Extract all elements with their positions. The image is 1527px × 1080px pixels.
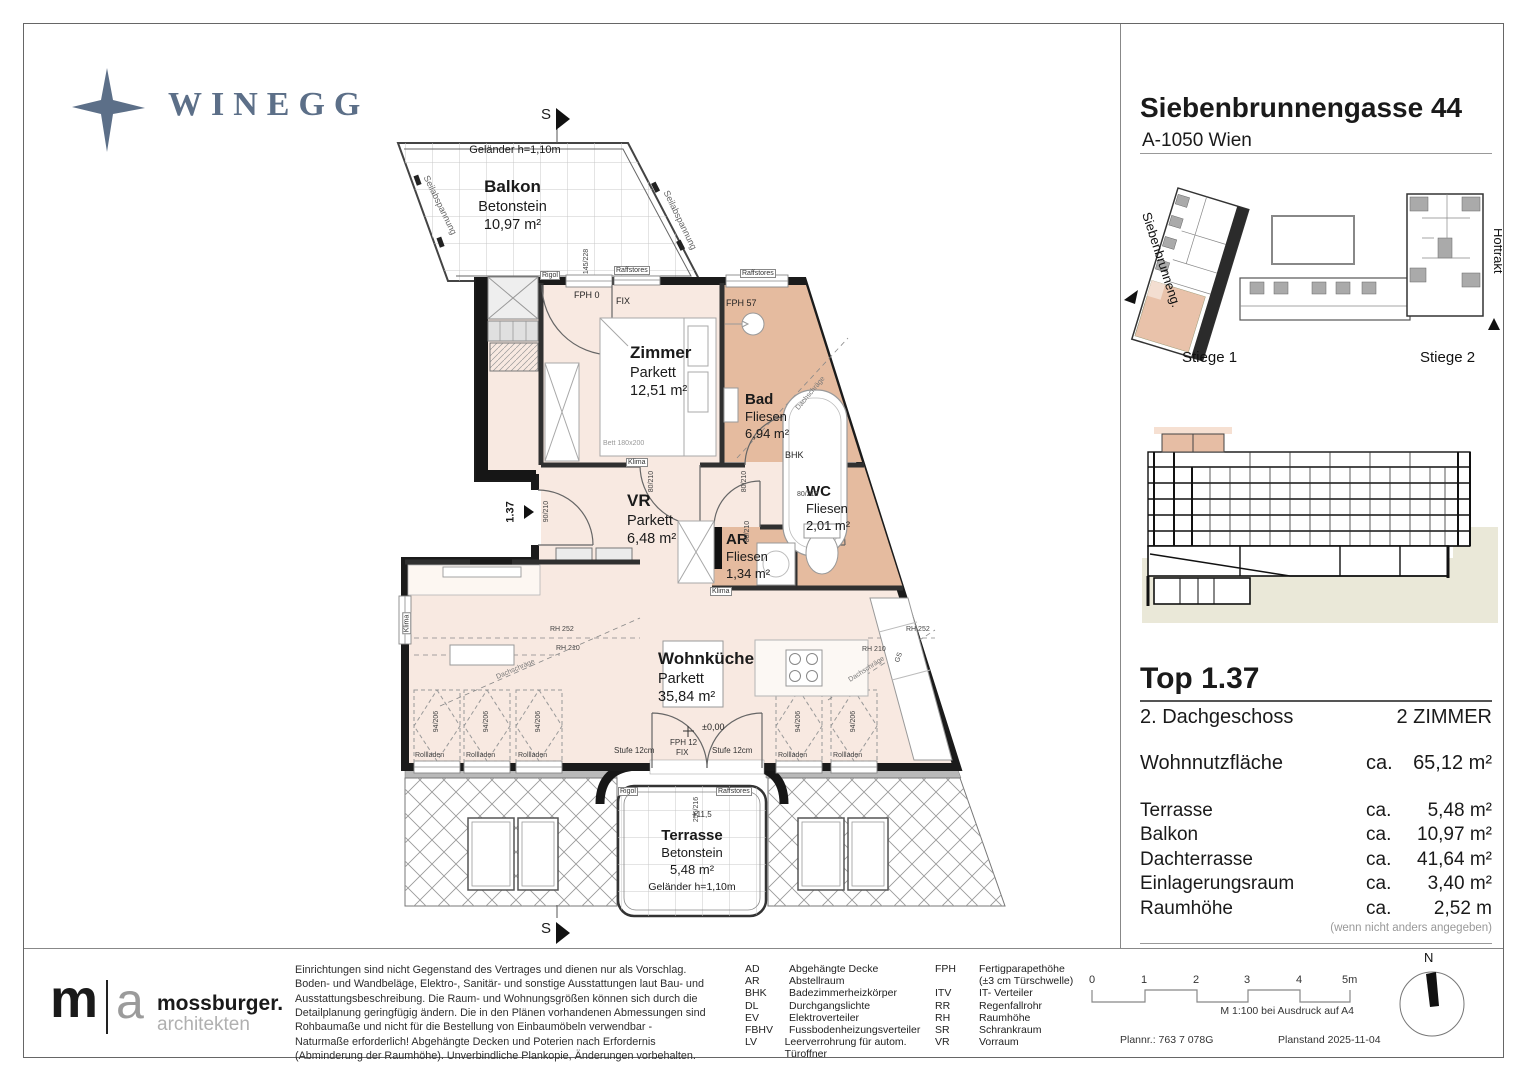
dim-94-2: 94/206 <box>476 710 497 728</box>
rollladen-5: Rollladen <box>833 752 862 759</box>
site-stiege1-label: Stiege 1 <box>1182 349 1237 366</box>
rh252-left: RH 252 <box>550 626 574 633</box>
fph57-label: FPH 57 <box>726 298 757 308</box>
dim-90-entrance: 90/210 <box>536 500 557 518</box>
rh210-right: RH 210 <box>862 646 886 653</box>
dim-145-228: 145/228 <box>574 250 599 268</box>
legend-left: ADAbgehängte Decke ARAbstellraum BHKBade… <box>745 963 935 1061</box>
unit-note: (wenn nicht anders angegeben) <box>1140 922 1492 934</box>
dim-80-bad: 80/210 <box>734 470 755 488</box>
unit-number-marker: 1.37 <box>500 502 521 520</box>
north-label: N <box>1424 950 1433 965</box>
plan-date: Planstand 2025-11-04 <box>1278 1034 1381 1046</box>
svg-text:2: 2 <box>1193 974 1199 986</box>
raffstores-label-bottom: Raffstores <box>716 787 752 796</box>
dachschraege-label-bad: Dachschräge <box>790 382 831 400</box>
svg-text:4: 4 <box>1296 974 1302 986</box>
living-area-label: Wohnnutzfläche <box>1140 752 1366 775</box>
unit-rooms: 2 ZIMMER <box>1396 706 1492 729</box>
floor-plan-sheet: S S Geländer h=1,10m Balkon Betonstein 1… <box>0 0 1527 1080</box>
rigol-label-bottom: Rigol <box>618 787 638 796</box>
cable-label-right: Seilabspannung <box>648 210 713 228</box>
header-rule <box>1140 153 1492 154</box>
brand-logo-text: WINEGG <box>168 86 369 124</box>
svg-text:0: 0 <box>1089 974 1095 986</box>
area-row-dachterrasse: Dachterrasse ca. 41,64 m² <box>1140 849 1492 871</box>
dim-94-1: 94/206 <box>426 710 447 728</box>
svg-text:3: 3 <box>1244 974 1250 986</box>
rollladen-1: Rollladen <box>415 752 444 759</box>
site-stiege2-label: Stiege 2 <box>1420 349 1475 366</box>
section-marker-bottom: S <box>541 920 551 937</box>
bed-size-label: Bett 180x200 <box>603 440 644 447</box>
room-label-terrasse: Terrasse Betonstein 5,48 m² <box>620 826 764 878</box>
stufe-right: Stufe 12cm <box>712 746 752 755</box>
unit-arrow-icon <box>524 505 534 519</box>
terrace-level: +11,5 <box>692 810 712 819</box>
section-marker-top: S <box>541 106 551 123</box>
dim-80-wc: 80/210 <box>797 491 818 498</box>
north-arrow-icon: N <box>1392 948 1502 1048</box>
area-row-terrasse: Terrasse ca. 5,48 m² <box>1140 800 1492 822</box>
building-section <box>1140 426 1500 636</box>
dim-80-zimmer: 80/210 <box>641 470 662 488</box>
area-row-einlagerungsraum: Einlagerungsraum ca. 3,40 m² <box>1140 873 1492 895</box>
fph12-label: FPH 12 <box>670 738 697 747</box>
site-plan: Stiege 1 Stiege 2 Siebenbrunneng. Hoftra… <box>1122 178 1502 373</box>
dachschraege-right: Dachschräge <box>846 658 887 676</box>
klima-label-zimmer: Klima <box>626 458 648 467</box>
svg-text:5m: 5m <box>1342 974 1357 986</box>
unit-floor: 2. Dachgeschoss <box>1140 706 1396 729</box>
raffstores-label-top: Raffstores <box>614 266 650 275</box>
living-area-row: Wohnnutzfläche ca. 65,12 m² <box>1140 752 1492 775</box>
railing-label-balcony: Geländer h=1,10m <box>430 144 600 156</box>
architect-logo-a: a <box>116 976 144 1026</box>
legend-right: FPHFertigparapethöhe (±3 cm Türschwelle)… <box>935 963 1095 1048</box>
fix-label-bottom: FIX <box>676 748 688 757</box>
page-title: Siebenbrunnengasse 44 <box>1140 92 1492 124</box>
room-label-wohnkueche: Wohnküche Parkett 35,84 m² <box>658 648 754 706</box>
room-label-zimmer: Zimmer Parkett 12,51 m² <box>630 342 691 400</box>
scale-note: M 1:100 bei Ausdruck auf A4 <box>1150 1005 1354 1017</box>
site-hoftrakt-label: Hoftrakt <box>1491 228 1502 274</box>
section-arrow-bottom-icon <box>556 922 570 944</box>
cable-label-left: Seilabspannung <box>408 195 473 213</box>
winegg-star-icon <box>60 62 160 157</box>
room-label-bad: Bad Fliesen 6,94 m² <box>745 390 789 442</box>
architect-logo-divider <box>106 980 108 1034</box>
plan-number: Plannr.: 763 7 078G <box>1120 1034 1213 1046</box>
rollladen-4: Rollladen <box>778 752 807 759</box>
rollladen-3: Rollladen <box>518 752 547 759</box>
rh252-right: RH 252 <box>906 626 930 633</box>
area-row-raumhoehe: Raumhöhe ca. 2,52 m <box>1140 898 1492 920</box>
klima-label-left: Klima <box>396 612 418 630</box>
raffstores-label-bad: Raffstores <box>740 269 776 278</box>
rigol-label-top: Rigol <box>540 271 560 280</box>
sideboard <box>443 567 521 577</box>
railing-label-terrace: Geländer h=1,10m <box>628 881 756 893</box>
living-area-value: 65,12 m² <box>1402 752 1492 775</box>
stufe-left: Stufe 12cm <box>614 746 654 755</box>
dim-94-4: 94/206 <box>788 710 809 728</box>
architect-logo-m: m <box>50 972 98 1026</box>
architect-name: mossburger. <box>157 992 283 1016</box>
fph0-label: FPH 0 <box>574 290 600 300</box>
architect-subtitle: architekten <box>157 1014 250 1036</box>
unit-number-title: Top 1.37 <box>1140 662 1259 696</box>
gs-label: GS <box>894 646 904 664</box>
rh210-left: RH 210 <box>556 645 580 652</box>
bhk-label: BHK <box>785 450 804 460</box>
dim-94-3: 94/206 <box>528 710 549 728</box>
section-arrow-top-icon <box>556 108 570 130</box>
scale-bar: 0 1 2 3 4 5m <box>1082 965 1372 1010</box>
room-label-wc: WC Fliesen 2,01 m² <box>806 482 850 534</box>
klima-label-ar: Klima <box>710 587 732 596</box>
rollladen-2: Rollladen <box>466 752 495 759</box>
dim-80-ar: 80/210 <box>737 520 758 538</box>
room-label-vr: VR Parkett 6,48 m² <box>627 490 676 548</box>
fix-label-top: FIX <box>616 296 630 306</box>
unit-floor-row: 2. Dachgeschoss 2 ZIMMER <box>1140 706 1492 729</box>
disclaimer-text: Einrichtungen sind nicht Gegenstand des … <box>295 963 709 1064</box>
level-zero-label: ±0,00 <box>702 722 724 732</box>
ca-prefix: ca. <box>1366 752 1402 775</box>
unit-title-rule <box>1140 700 1492 702</box>
area-row-balkon: Balkon ca. 10,97 m² <box>1140 824 1492 846</box>
dachschraege-left: Dachschräge <box>495 658 536 676</box>
svg-text:1: 1 <box>1141 974 1147 986</box>
unit-bottom-rule <box>1140 943 1492 944</box>
page-subtitle: A-1050 Wien <box>1142 130 1494 152</box>
dim-94-5: 94/206 <box>843 710 864 728</box>
